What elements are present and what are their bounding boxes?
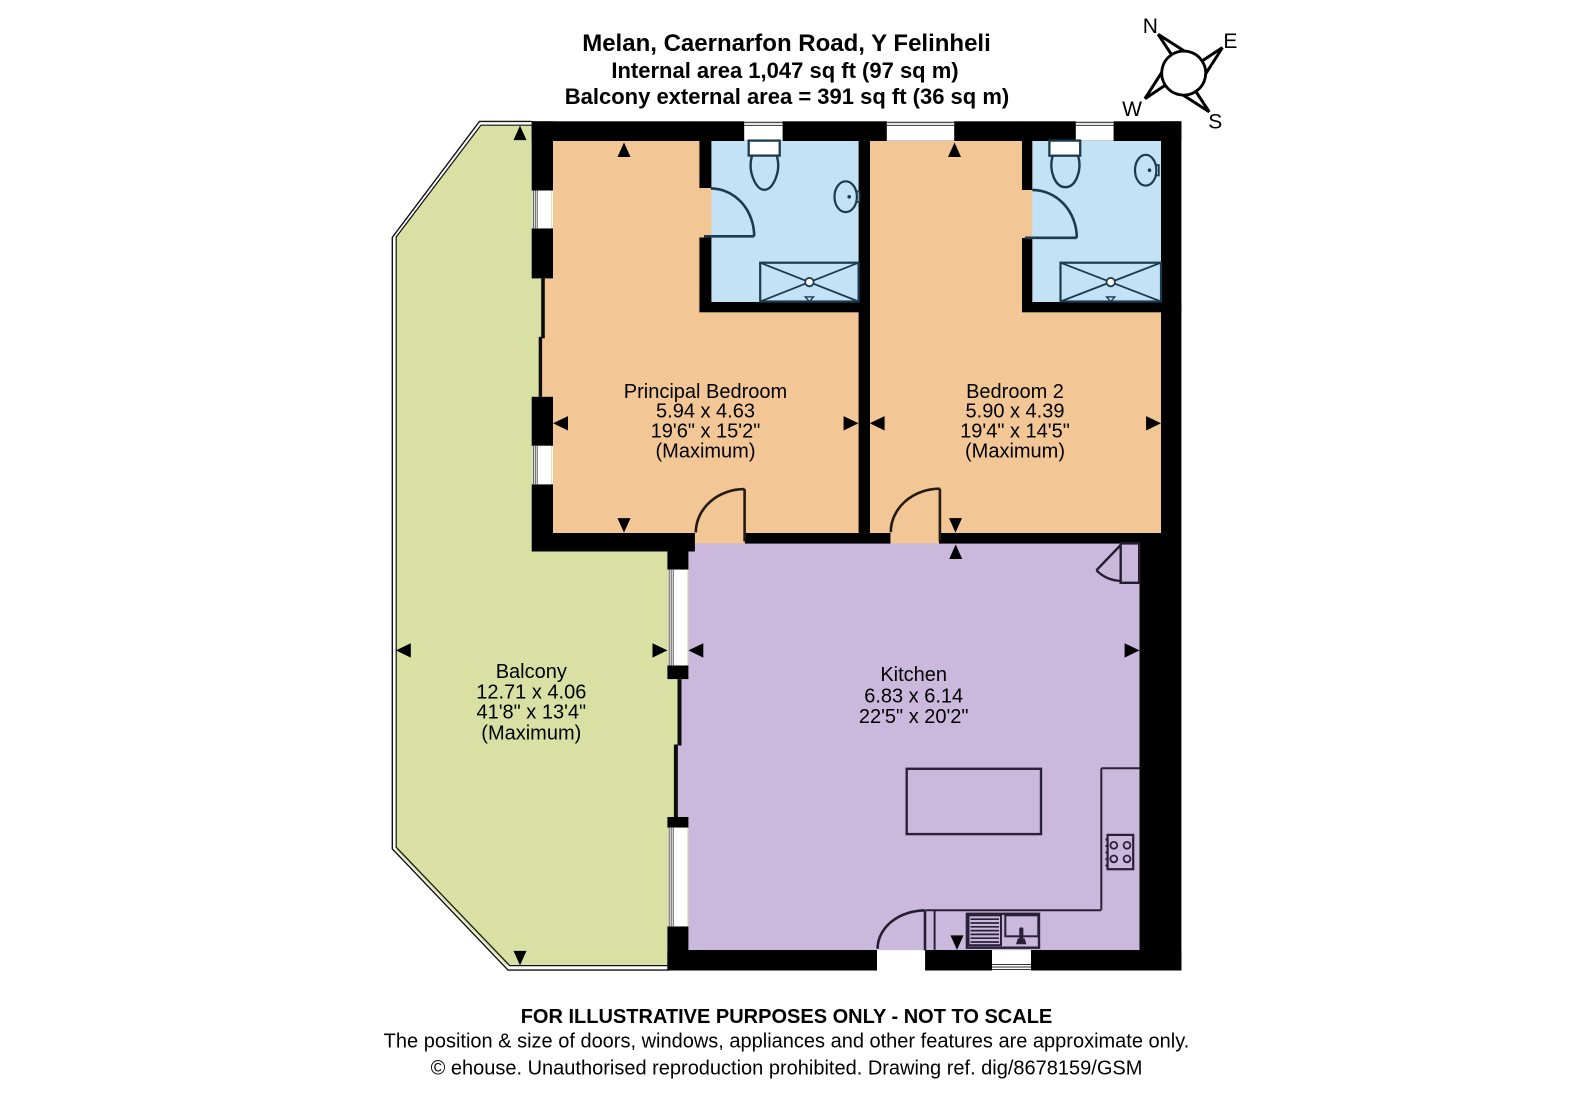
svg-text:5.94 x 4.63: 5.94 x 4.63 xyxy=(656,401,755,423)
svg-text:W: W xyxy=(1122,98,1142,121)
svg-text:Kitchen: Kitchen xyxy=(880,664,947,686)
svg-text:19'6" x 15'2": 19'6" x 15'2" xyxy=(651,420,761,442)
svg-text:FOR ILLUSTRATIVE PURPOSES ONLY: FOR ILLUSTRATIVE PURPOSES ONLY - NOT TO … xyxy=(521,1006,1053,1028)
svg-text:Internal area 1,047 sq ft (97: Internal area 1,047 sq ft (97 sq m) xyxy=(611,58,958,83)
svg-text:6.83 x 6.14: 6.83 x 6.14 xyxy=(864,686,963,708)
svg-text:5.90 x 4.39: 5.90 x 4.39 xyxy=(966,401,1065,423)
svg-text:© ehouse. Unauthorised reprodu: © ehouse. Unauthorised reproduction proh… xyxy=(431,1058,1143,1080)
svg-text:19'4" x 14'5": 19'4" x 14'5" xyxy=(960,420,1070,442)
svg-text:N: N xyxy=(1143,15,1158,38)
svg-text:41'8" x 13'4": 41'8" x 13'4" xyxy=(476,702,586,724)
svg-text:Melan, Caernarfon Road, Y Feli: Melan, Caernarfon Road, Y Felinheli xyxy=(582,30,991,57)
svg-text:12.71 x 4.06: 12.71 x 4.06 xyxy=(476,681,586,703)
svg-text:Balcony external area = 391 sq: Balcony external area = 391 sq ft (36 sq… xyxy=(565,84,1009,109)
svg-text:22'5" x 20'2": 22'5" x 20'2" xyxy=(859,706,969,728)
svg-text:(Maximum): (Maximum) xyxy=(656,440,756,462)
svg-text:Balcony: Balcony xyxy=(496,661,567,683)
svg-text:The position & size of doors,: The position & size of doors, windows, a… xyxy=(384,1031,1190,1053)
svg-text:S: S xyxy=(1208,111,1222,134)
svg-text:E: E xyxy=(1223,30,1237,53)
svg-text:(Maximum): (Maximum) xyxy=(481,722,581,744)
svg-text:(Maximum): (Maximum) xyxy=(965,440,1065,462)
